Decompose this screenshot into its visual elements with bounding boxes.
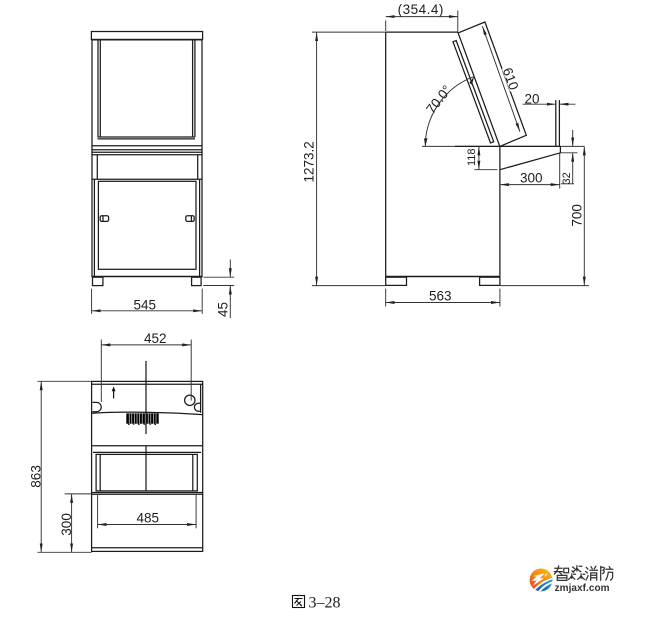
svg-text:32: 32	[561, 172, 573, 184]
svg-text:45: 45	[216, 302, 231, 317]
svg-text:563: 563	[429, 289, 452, 304]
svg-text:1273.2: 1273.2	[302, 141, 317, 182]
svg-text:863: 863	[29, 465, 44, 488]
svg-text:700: 700	[569, 204, 584, 227]
svg-text:300: 300	[59, 513, 74, 536]
svg-text:(354.4): (354.4)	[398, 2, 444, 17]
svg-text:485: 485	[137, 511, 160, 526]
svg-text:300: 300	[520, 171, 543, 186]
svg-text:118: 118	[466, 148, 478, 166]
svg-text:3–28: 3–28	[309, 595, 341, 612]
svg-text:452: 452	[144, 331, 167, 346]
svg-text:zmjaxf.com: zmjaxf.com	[555, 583, 610, 594]
svg-text:545: 545	[134, 298, 157, 313]
